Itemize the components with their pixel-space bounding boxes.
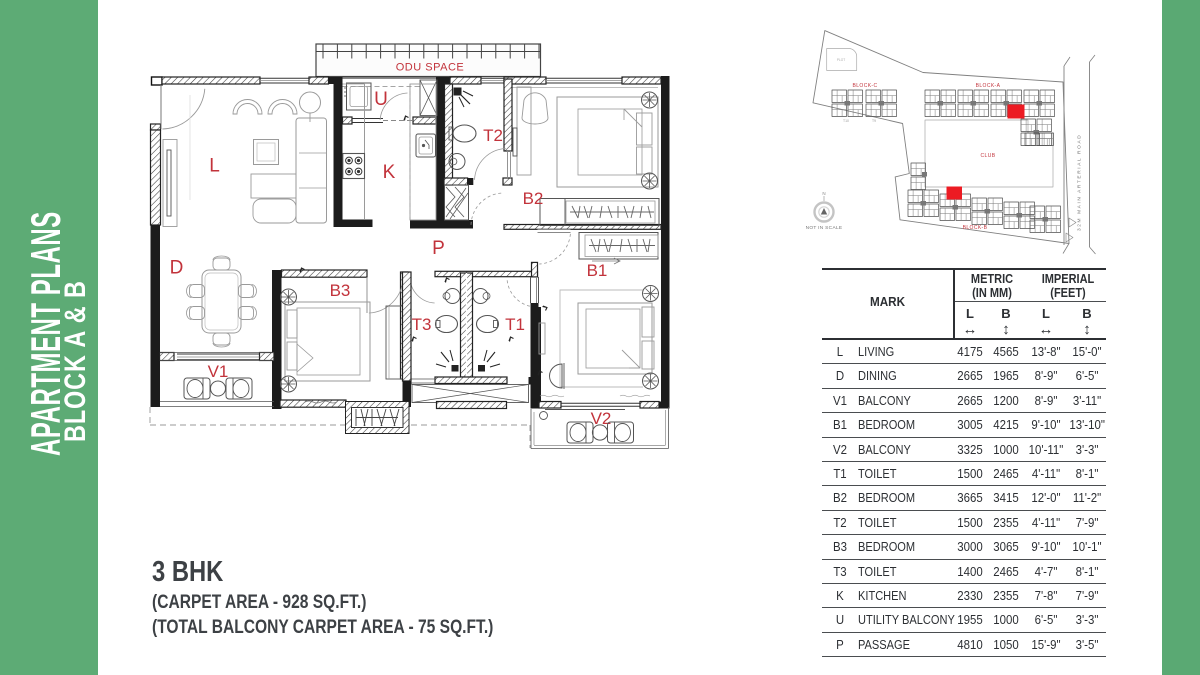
svg-text:BLOCK-B: BLOCK-B [963,225,988,231]
svg-text:U: U [374,89,388,110]
svg-text:K: K [383,162,396,183]
svg-text:32M MAIN ARTERIAL ROAD: 32M MAIN ARTERIAL ROAD [1077,134,1083,231]
svg-text:D: D [170,258,184,279]
svg-text:ODU SPACE: ODU SPACE [396,62,464,74]
svg-text:T9: T9 [872,119,876,123]
svg-text:NOT IN SCALE: NOT IN SCALE [806,225,843,231]
svg-text:BLOCK-A: BLOCK-A [976,83,1001,89]
svg-text:V1: V1 [208,362,229,381]
svg-text:P: P [432,238,445,259]
svg-text:B3: B3 [330,281,351,300]
svg-text:PLOT: PLOT [837,58,845,62]
svg-text:T2: T2 [483,126,503,145]
svg-text:T3: T3 [412,315,432,334]
svg-text:T1: T1 [505,315,525,334]
svg-text:T10: T10 [843,119,849,123]
svg-text:BLOCK-C: BLOCK-C [852,83,877,89]
svg-text:B2: B2 [523,189,544,208]
svg-text:CLUB: CLUB [981,153,996,159]
svg-text:B1: B1 [587,261,608,280]
svg-text:L: L [209,156,220,177]
svg-text:N: N [822,191,825,196]
